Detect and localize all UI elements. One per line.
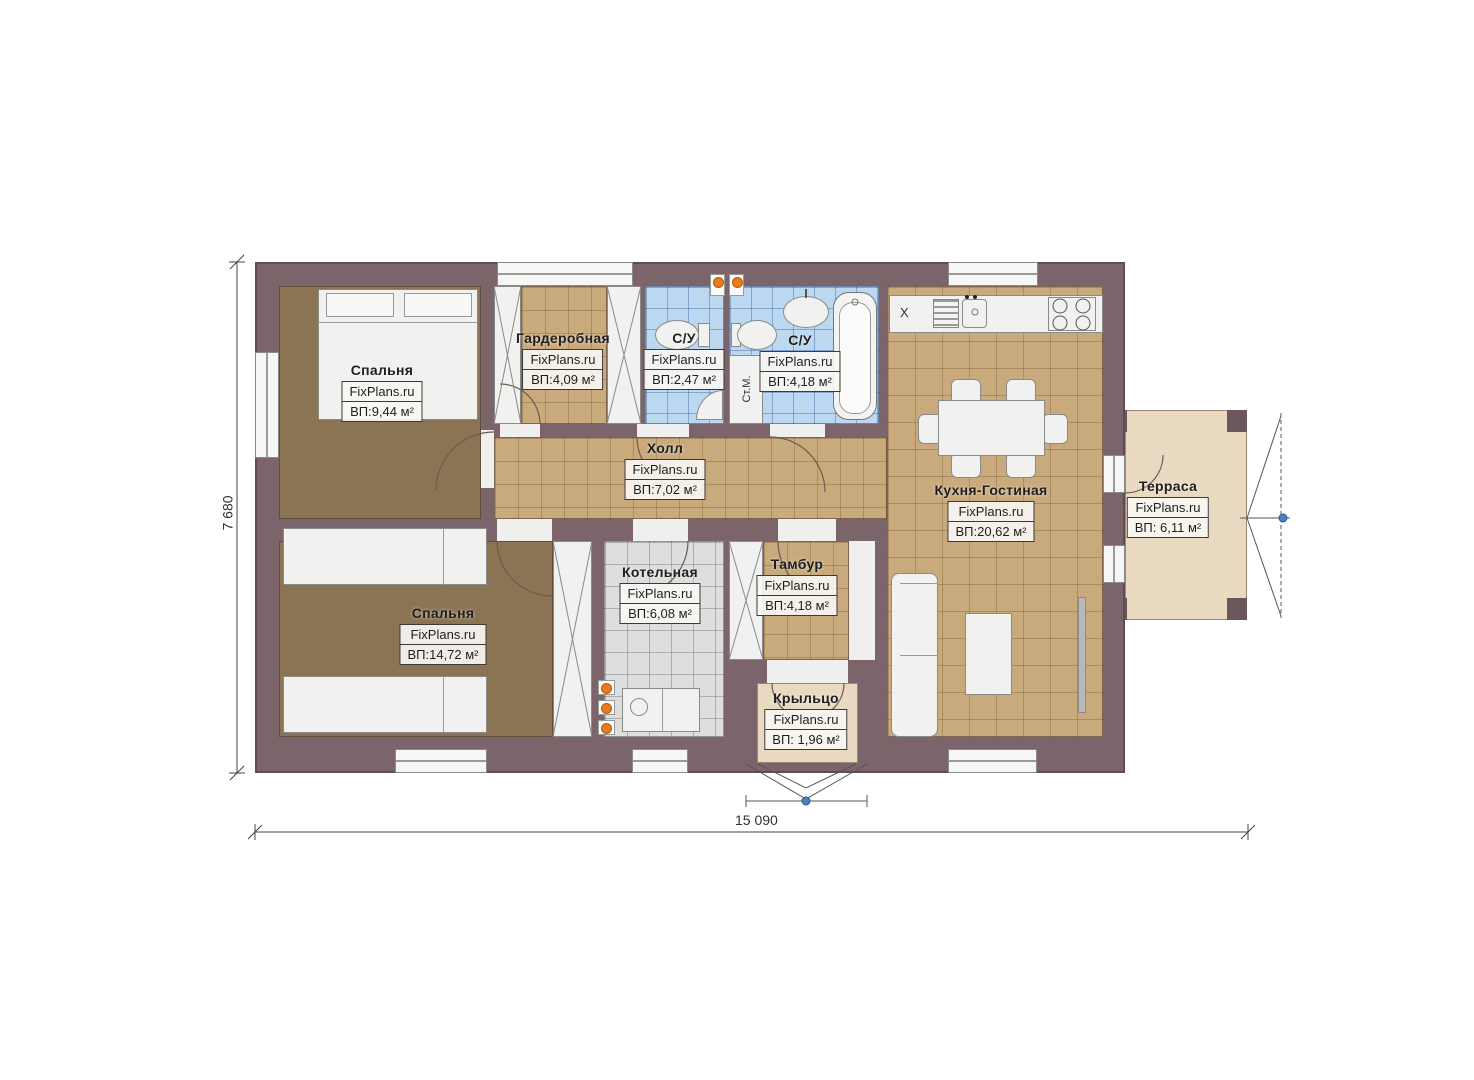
vent-shaft [598,700,615,715]
door-bedroom-1 [481,430,494,488]
dining-table [938,400,1045,456]
room-info-box: FixPlans.ru ВП:4,18 м² [756,575,837,616]
washing-machine-label: Ст.М. [741,372,753,406]
window-top-wardrobe [497,262,633,286]
watermark: FixPlans.ru [620,584,699,603]
vent-dot [601,683,612,694]
room-area: ВП:14,72 м² [400,644,485,664]
room-area: ВП:4,18 м² [757,595,836,615]
room-name: Кухня-Гостиная [934,482,1047,498]
door-wardrobe [500,424,540,437]
wardrobe-cabinet-right [607,286,641,424]
room-info-box: FixPlans.ru ВП:9,44 м² [341,381,422,422]
coffee-table [965,613,1012,695]
vent-dot [601,703,612,714]
room-name: Спальня [341,362,422,378]
vent-shaft [598,680,615,695]
stove [1048,297,1096,331]
single-bed [283,676,487,733]
pillow [326,293,394,317]
window-top-kitchen [948,262,1038,286]
room-area: ВП: 1,96 м² [765,729,846,749]
watermark: FixPlans.ru [757,576,836,595]
sink-drainer [933,299,959,328]
boiler-divider [662,688,663,732]
label-boiler: Котельная FixPlans.ru ВП:6,08 м² [619,564,700,624]
room-area: ВП:2,47 м² [644,369,723,389]
room-info-box: FixPlans.ru ВП: 6,11 м² [1127,497,1209,538]
window-boiler [632,749,688,773]
room-info-box: FixPlans.ru ВП:4,09 м² [522,349,603,390]
bed-head-line [443,676,444,733]
fridge-symbol: X [900,305,909,320]
vestibule-side-strip [849,541,875,660]
room-area: ВП:9,44 м² [342,401,421,421]
room-name: Холл [624,440,705,456]
terrace-post [1227,410,1247,432]
label-bathroom-2: С/У FixPlans.ru ВП:4,18 м² [759,332,840,392]
window-bedroom-1 [255,352,279,458]
vent-shaft [729,274,744,296]
room-name: Котельная [619,564,700,580]
terrace-opening-lines [1240,413,1290,618]
watermark: FixPlans.ru [342,382,421,401]
vent-shaft [598,720,615,735]
single-bed [283,528,487,585]
room-area: ВП:6,08 м² [620,603,699,623]
room-name: С/У [643,330,724,346]
label-hall: Холл FixPlans.ru ВП:7,02 м² [624,440,705,500]
room-info-box: FixPlans.ru ВП:7,02 м² [624,459,705,500]
window-living [948,749,1037,773]
room-name: Тамбур [756,556,837,572]
door-bathroom-2 [770,424,825,437]
watermark: FixPlans.ru [1128,498,1208,517]
terrace-door-opening [1103,455,1125,493]
boiler-dial [630,698,648,716]
kitchen-sink [962,299,987,328]
watermark: FixPlans.ru [400,625,485,644]
room-info-box: FixPlans.ru ВП: 1,96 м² [764,709,847,750]
floor-plan-canvas: X Ст.М. [0,0,1474,1080]
bathtub-inner [839,302,871,414]
watermark: FixPlans.ru [644,350,723,369]
sofa-line [900,583,938,584]
vent-dot [601,723,612,734]
label-kitchen-living: Кухня-Гостиная FixPlans.ru ВП:20,62 м² [934,482,1047,542]
label-wardrobe: Гардеробная FixPlans.ru ВП:4,09 м² [516,330,610,390]
room-area: ВП:4,09 м² [523,369,602,389]
room-name: Терраса [1127,478,1209,494]
room-name: Гардеробная [516,330,610,346]
room-area: ВП: 6,11 м² [1128,517,1208,537]
label-bedroom-1: Спальня FixPlans.ru ВП:9,44 м² [341,362,422,422]
blanket-line [318,322,478,323]
room-info-box: FixPlans.ru ВП:4,18 м² [759,351,840,392]
room-info-box: FixPlans.ru ВП:20,62 м² [947,501,1034,542]
room-area: ВП:7,02 м² [625,479,704,499]
dimension-height: 7 680 [220,495,236,530]
bedroom-2-closet [553,541,592,737]
watermark: FixPlans.ru [760,352,839,371]
window-bedroom-2 [395,749,487,773]
watermark: FixPlans.ru [765,710,846,729]
room-area: ВП:20,62 м² [948,521,1033,541]
room-info-box: FixPlans.ru ВП:2,47 м² [643,349,724,390]
label-bathroom-1: С/У FixPlans.ru ВП:2,47 м² [643,330,724,390]
room-info-box: FixPlans.ru ВП:6,08 м² [619,583,700,624]
label-terrace: Терраса FixPlans.ru ВП: 6,11 м² [1127,478,1209,538]
label-bedroom-2: Спальня FixPlans.ru ВП:14,72 м² [399,605,486,665]
bed-head-line [443,528,444,585]
window-to-terrace [1103,545,1125,583]
tv-unit [1078,597,1086,713]
door-bathroom-1 [637,424,689,437]
sofa-line [900,655,938,656]
door-vestibule [778,519,836,541]
room-name: Крыльцо [764,690,847,706]
watermark: FixPlans.ru [523,350,602,369]
door-bedroom-2 [497,519,552,541]
room-name: С/У [759,332,840,348]
vent-dot [732,277,743,288]
watermark: FixPlans.ru [625,460,704,479]
watermark: FixPlans.ru [948,502,1033,521]
pillow [404,293,472,317]
terrace-post [1227,598,1247,620]
vent-dot [713,277,724,288]
label-vestibule: Тамбур FixPlans.ru ВП:4,18 м² [756,556,837,616]
room-info-box: FixPlans.ru ВП:14,72 м² [399,624,486,665]
label-porch: Крыльцо FixPlans.ru ВП: 1,96 м² [764,690,847,750]
entrance-door-opening [767,660,848,683]
dimension-width: 15 090 [735,812,778,828]
room-area: ВП:4,18 м² [760,371,839,391]
vent-shaft [710,274,725,296]
door-boiler [633,519,688,541]
chair [1042,414,1068,444]
room-name: Спальня [399,605,486,621]
wash-basin [783,296,829,328]
